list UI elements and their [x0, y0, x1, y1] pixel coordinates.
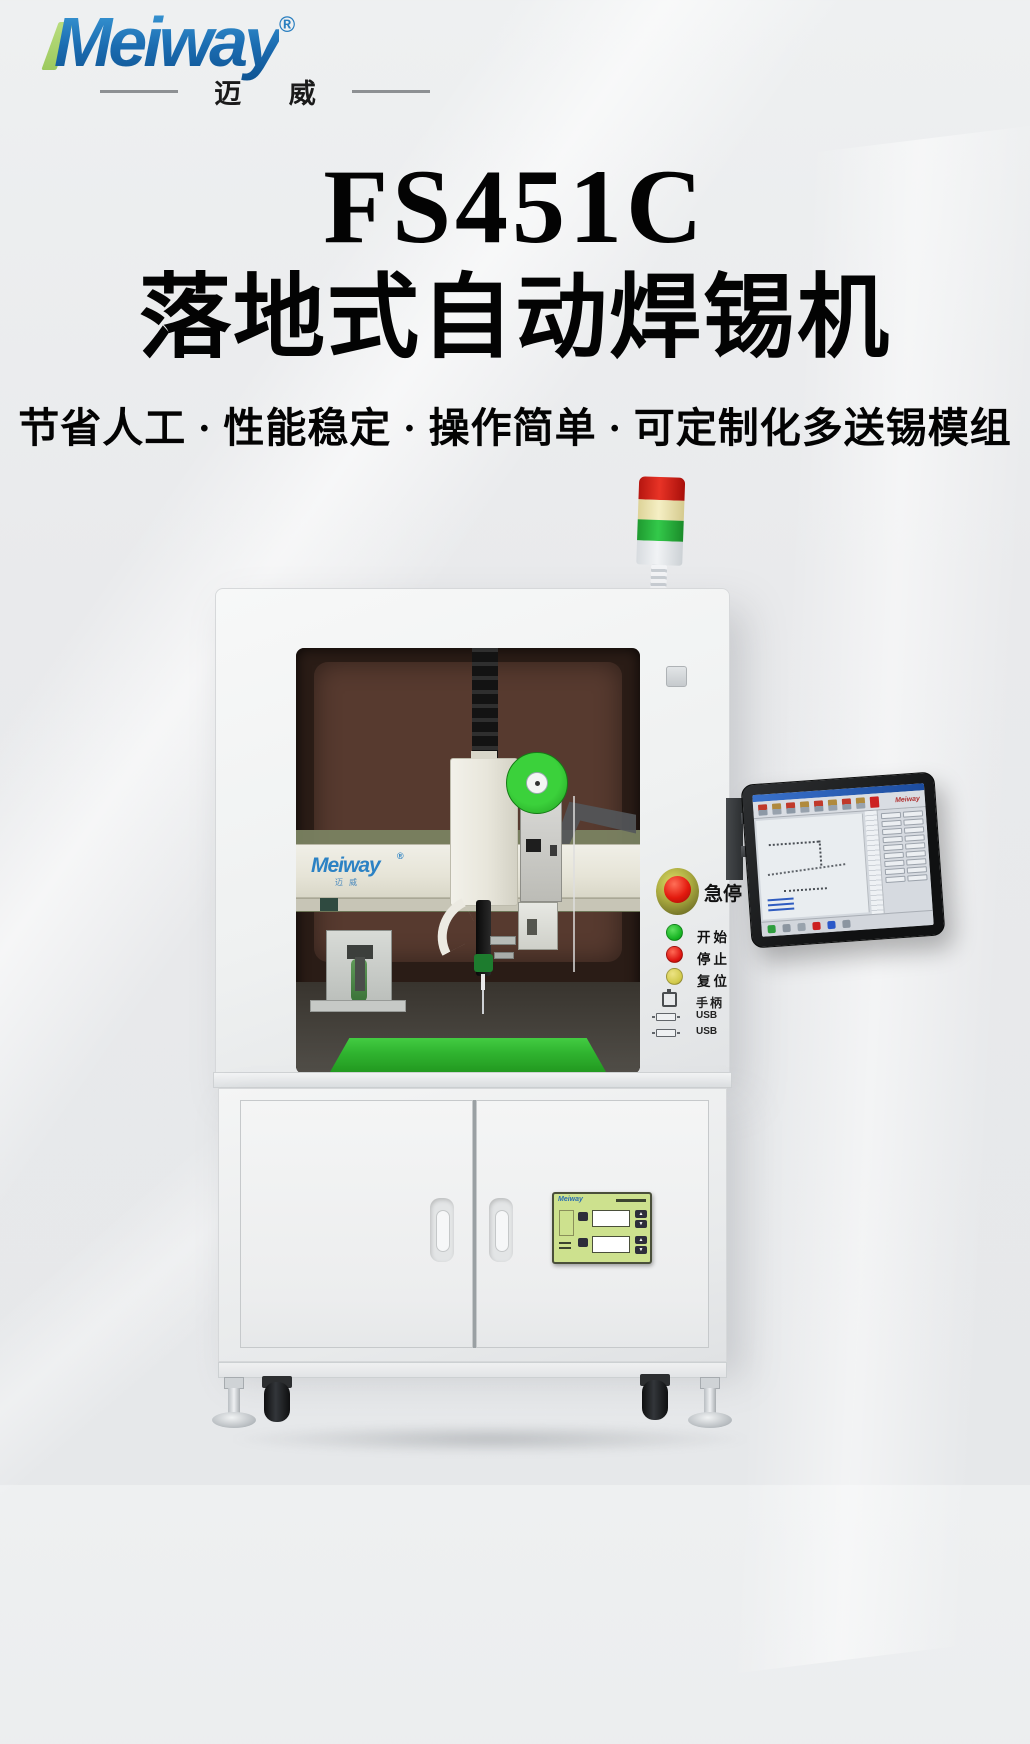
- tower-green-segment: [637, 519, 684, 542]
- touch-screen-monitor: Meiway: [741, 771, 946, 948]
- arrow-up-icon: ▲: [635, 1210, 647, 1218]
- door-handle-right: [489, 1198, 513, 1262]
- gantry-registered-mark: ®: [397, 851, 404, 861]
- tower-yellow-segment: [638, 499, 685, 521]
- canvas-text-line: [768, 898, 794, 902]
- fixture-base: [310, 1000, 406, 1012]
- usb-port-icon: [656, 1029, 676, 1037]
- monitor-arm-plate: [726, 798, 743, 880]
- iron-heater: [474, 954, 493, 972]
- caster-wheel: [264, 1382, 290, 1422]
- path-canvas: [756, 814, 870, 920]
- tin-spool-axle: [535, 781, 540, 786]
- machine-photo: Meiway ® 迈威: [0, 0, 1030, 1485]
- fixture-bottle: [351, 959, 367, 1003]
- status-icon: [797, 923, 806, 932]
- foot-disc: [688, 1412, 732, 1428]
- caster-wheel: [642, 1380, 668, 1420]
- usb-port-label: USB: [696, 1026, 717, 1037]
- signal-tower-light: [633, 476, 687, 600]
- temp-display-upper: [592, 1210, 630, 1227]
- software-brand-logo: Meiway: [895, 795, 920, 804]
- usb-port-label: USB: [696, 1010, 717, 1021]
- toolbar-icon: [842, 798, 852, 810]
- status-icon: [812, 922, 821, 931]
- toolbar-icon: [856, 797, 866, 809]
- arrow-up-icon: ▲: [635, 1236, 647, 1244]
- reset-button-label: 复位: [697, 970, 730, 990]
- canvas-text-line: [769, 908, 795, 912]
- door-handle-left: [430, 1198, 454, 1262]
- reset-button: [666, 968, 683, 985]
- ground-shadow: [225, 1424, 755, 1454]
- toolbar-icon: [828, 799, 838, 811]
- foot-disc: [212, 1412, 256, 1428]
- software-body: [754, 807, 933, 922]
- temperature-control-panel: Meiway ▲ ▼ ▲ ▼: [552, 1192, 652, 1264]
- head-clamp: [490, 936, 516, 945]
- status-icon: [827, 921, 836, 930]
- temp-panel-title-bar: [616, 1199, 646, 1202]
- button-panel: [878, 807, 933, 913]
- toolbar-icon: [772, 803, 782, 815]
- start-button: [666, 924, 683, 941]
- temp-panel-label-mark: [559, 1247, 571, 1249]
- rail-tab: [320, 898, 338, 911]
- handle-connector-icon: [662, 992, 677, 1007]
- solder-path: [768, 864, 846, 877]
- canvas-text-line: [768, 903, 794, 907]
- solder-path: [819, 840, 823, 866]
- emergency-stop-button: [664, 876, 691, 903]
- soldering-head: [430, 900, 510, 1016]
- solder-path: [768, 840, 819, 846]
- work-fixture: [326, 930, 392, 1008]
- emergency-stop: 急停: [656, 868, 699, 915]
- cabinet-middle-lip: [213, 1072, 732, 1088]
- start-button-label: 开始: [697, 926, 730, 946]
- tin-spool: [506, 752, 568, 814]
- toolbar-icon: [786, 802, 796, 814]
- iron-tip: [481, 974, 485, 990]
- feed-tube: [423, 898, 482, 956]
- temp-panel-outline: [559, 1210, 574, 1236]
- temp-panel-button: [578, 1238, 588, 1247]
- temp-panel-brand: Meiway: [558, 1196, 583, 1203]
- status-icon: [767, 925, 776, 934]
- power-switch: [666, 666, 687, 687]
- solder-path: [784, 887, 826, 892]
- arrow-down-icon: ▼: [635, 1246, 647, 1254]
- emergency-stop-label: 急停: [704, 879, 742, 906]
- solder-wire: [573, 796, 575, 972]
- cable-chain: [472, 648, 498, 762]
- tin-feeder-block: [518, 902, 558, 950]
- monitor-screen: Meiway: [752, 783, 933, 937]
- temp-panel-button: [578, 1212, 588, 1221]
- toolbar-icon: [870, 796, 880, 808]
- door-seam: [473, 1100, 476, 1348]
- gantry-brand-name: Meiway: [311, 854, 380, 878]
- status-icon: [782, 924, 791, 933]
- work-platform: [330, 1038, 606, 1072]
- tower-base: [636, 540, 683, 566]
- head-clamp: [494, 952, 514, 959]
- temp-display-lower: [592, 1236, 630, 1253]
- toolbar-icon: [814, 800, 824, 812]
- iron-needle: [482, 990, 484, 1014]
- handle-port-label: 手柄: [696, 994, 724, 1011]
- work-window: Meiway ® 迈威: [296, 648, 640, 1074]
- status-icon: [842, 920, 851, 929]
- gantry-brand-chinese: 迈威: [335, 877, 363, 888]
- stop-button-label: 停止: [697, 948, 730, 968]
- stop-button: [666, 946, 683, 963]
- tower-red-segment: [638, 476, 685, 501]
- arrow-down-icon: ▼: [635, 1220, 647, 1228]
- temp-panel-label-mark: [559, 1242, 571, 1244]
- usb-port-icon: [656, 1013, 676, 1021]
- toolbar-icon: [800, 801, 810, 813]
- toolbar-icon: [758, 804, 768, 816]
